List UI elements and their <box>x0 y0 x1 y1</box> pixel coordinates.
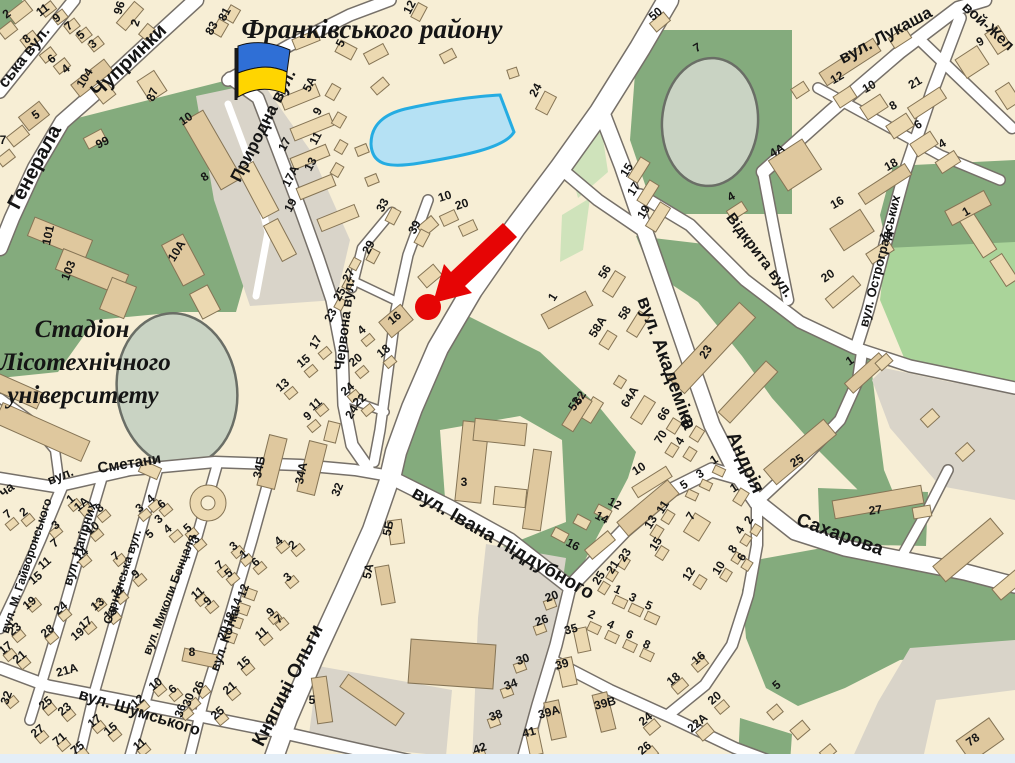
map-svg[interactable]: 211975386410496287579910110310А1085А9111… <box>0 0 1015 763</box>
area-name-label: Франківського району <box>241 14 503 44</box>
area-name-label: Стадіон <box>35 316 130 343</box>
house-number: 7 <box>0 133 7 147</box>
building <box>408 639 496 689</box>
round-building-court <box>201 496 215 510</box>
map-edge-strip <box>0 754 1015 763</box>
area-name-label: Лісотехнічного <box>0 349 171 376</box>
house-number: 27 <box>868 502 883 518</box>
house-number: 5 <box>309 693 316 707</box>
destination-dot-marker <box>415 294 441 320</box>
building <box>493 486 527 507</box>
house-number: 3 <box>461 475 468 489</box>
house-number: 8 <box>189 645 196 659</box>
map-canvas[interactable]: 211975386410496287579910110310А1085А9111… <box>0 0 1015 763</box>
building <box>473 418 527 445</box>
area-name-label: університету <box>4 382 159 409</box>
